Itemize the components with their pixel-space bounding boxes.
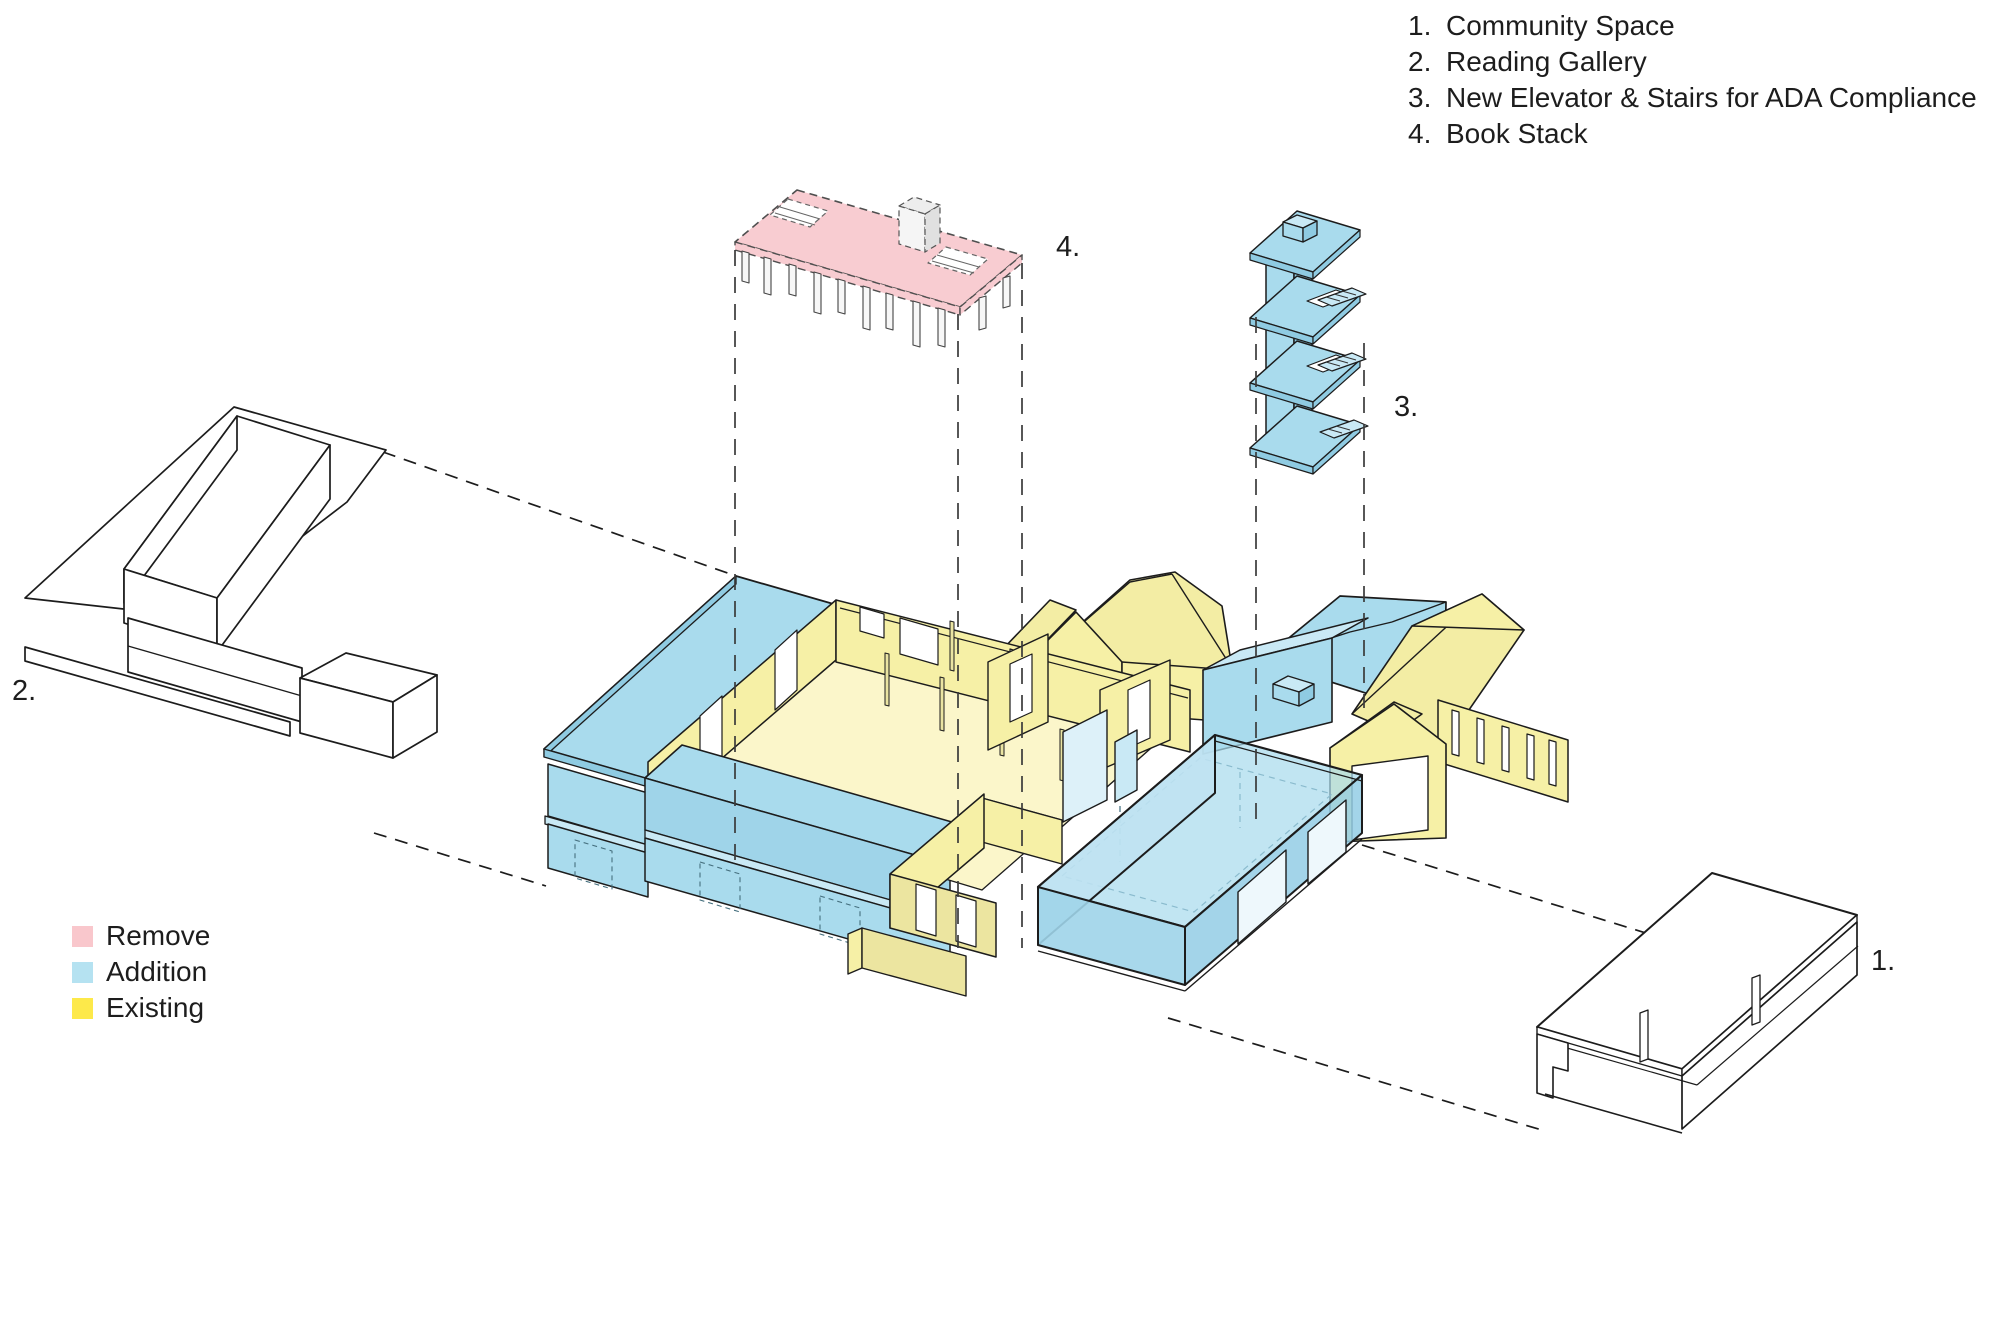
connector-to-community-space-upper xyxy=(1362,845,1662,938)
pavilion-partition xyxy=(1752,975,1760,1025)
bookstack-column xyxy=(863,286,870,330)
key-item: 3. New Elevator & Stairs for ADA Complia… xyxy=(1408,80,1977,116)
bookstack-column xyxy=(742,251,749,283)
existing-annex-window xyxy=(1352,756,1428,840)
clerestory-slot xyxy=(1549,740,1556,786)
diagram-page: 1. Community Space 2. Reading Gallery 3.… xyxy=(0,0,2000,1333)
existing-frontroom-door xyxy=(916,884,936,936)
remove-swatch-icon xyxy=(72,926,93,947)
key-item: 2. Reading Gallery xyxy=(1408,44,1977,80)
key-item-label: New Elevator & Stairs for ADA Compliance xyxy=(1446,80,1977,116)
key-item-number: 2. xyxy=(1408,44,1446,80)
connector-to-reading-gallery-upper xyxy=(383,452,736,576)
pavilion-floor-line xyxy=(1545,1094,1682,1133)
existing-room-door xyxy=(1010,654,1032,722)
connector-to-reading-gallery-lower xyxy=(374,833,546,886)
bookstack-column xyxy=(838,279,845,314)
key-item-number: 3. xyxy=(1408,80,1446,116)
connector-to-community-space-lower xyxy=(1168,1018,1545,1131)
key-item-label: Community Space xyxy=(1446,8,1675,44)
addition-swatch-icon xyxy=(72,962,93,983)
clerestory-slot xyxy=(1502,726,1509,772)
key-item-number: 1. xyxy=(1408,8,1446,44)
callout-elevator-stairs: 3. xyxy=(1394,392,1418,422)
courtyard-post xyxy=(885,653,889,706)
existing-swatch-icon xyxy=(72,998,93,1019)
key-item-label: Book Stack xyxy=(1446,116,1588,152)
callout-reading-gallery: 2. xyxy=(12,676,36,706)
axonometric-diagram xyxy=(0,0,2000,1333)
key-item-number: 4. xyxy=(1408,116,1446,152)
legend-item-existing: Existing xyxy=(72,990,210,1026)
legend-item-remove: Remove xyxy=(72,918,210,954)
legend-item-addition: Addition xyxy=(72,954,210,990)
callout-book-stack: 4. xyxy=(1056,232,1080,262)
bookstack-column xyxy=(913,301,920,347)
key-item: 4. Book Stack xyxy=(1408,116,1977,152)
bookstack-column xyxy=(1003,276,1010,308)
pavilion-partition xyxy=(1640,1010,1648,1062)
addition-connector-wall xyxy=(1115,730,1137,802)
clerestory-slot xyxy=(1477,718,1484,764)
bookstack-column xyxy=(764,257,771,295)
key-item: 1. Community Space xyxy=(1408,8,1977,44)
numbered-key-list: 1. Community Space 2. Reading Gallery 3.… xyxy=(1408,8,1977,152)
courtyard-post xyxy=(940,677,944,731)
legend-label: Remove xyxy=(106,918,210,954)
bookstack-column xyxy=(886,293,893,330)
color-legend: Remove Addition Existing xyxy=(72,918,210,1026)
bookstack-column xyxy=(979,296,986,330)
existing-frontroom-annex-west xyxy=(848,928,862,974)
clerestory-slot xyxy=(1527,734,1534,780)
bookstack-column xyxy=(938,308,945,347)
bookstack-column xyxy=(789,264,796,296)
bookstack-elevator-front xyxy=(899,206,925,252)
key-item-label: Reading Gallery xyxy=(1446,44,1647,80)
legend-label: Addition xyxy=(106,954,207,990)
legend-label: Existing xyxy=(106,990,204,1026)
pavilion-end-wall xyxy=(1537,1034,1568,1098)
courtyard-post xyxy=(950,621,954,671)
existing-frontroom-door xyxy=(956,895,976,947)
callout-community-space: 1. xyxy=(1871,946,1895,976)
bookstack-column xyxy=(814,272,821,314)
clerestory-slot xyxy=(1452,710,1459,756)
